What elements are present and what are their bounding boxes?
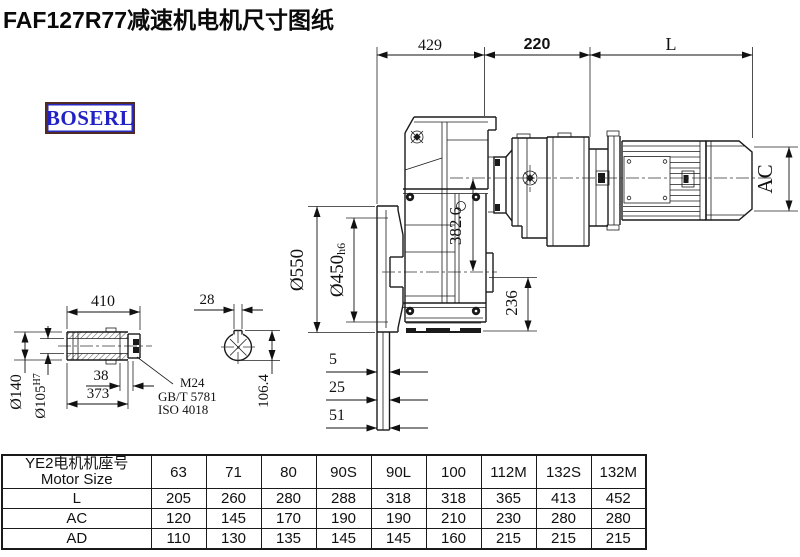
technical-drawing: 429 220 L [0, 0, 800, 454]
motor: AC [607, 131, 798, 230]
cell: 190 [371, 509, 426, 529]
dim-410: 410 [91, 293, 115, 310]
col-100: 100 [426, 455, 481, 489]
dim-106-4: 106.4 [256, 374, 272, 408]
table-row: AD 110 130 135 145 145 160 215 215 215 [2, 529, 646, 550]
bolt-symbol [411, 131, 423, 143]
row-label: AD [2, 529, 151, 550]
table-header-row: YE2电机机座号 Motor Size 63 71 80 90S 90L 100… [2, 455, 646, 489]
page: FAF127R77减速机电机尺寸图纸 BOSERL 429 220 L [0, 0, 800, 557]
cell: 145 [206, 509, 261, 529]
cell: 365 [481, 489, 536, 509]
cell: 260 [206, 489, 261, 509]
top-dimensions: 429 220 L [377, 34, 753, 204]
axes-and-vertical-dims: 382.6 236 [446, 178, 772, 331]
r-gear-unit [488, 133, 609, 246]
row-label: AC [2, 509, 151, 529]
dim-28: 28 [200, 292, 215, 308]
dim-382-6: 382.6 [446, 207, 465, 245]
cell: 215 [591, 529, 646, 550]
cell: 130 [206, 529, 261, 550]
dim-hub-od: Ø140 [8, 374, 25, 410]
cell: 210 [426, 509, 481, 529]
dim-38: 38 [94, 368, 109, 384]
cell: 215 [536, 529, 591, 550]
dim-spigot: Ø450h6 [327, 243, 348, 297]
cell: 280 [261, 489, 316, 509]
cell: 145 [371, 529, 426, 550]
hollow-shaft-view: 410 Ø140 Ø105H7 38 373 [8, 293, 217, 419]
note-m24: M24 [180, 375, 205, 390]
cell: 318 [426, 489, 481, 509]
cell: 135 [261, 529, 316, 550]
dim-236: 236 [502, 290, 521, 316]
cell: 160 [426, 529, 481, 550]
dim-flange-od: Ø550 [287, 249, 308, 291]
col-80: 80 [261, 455, 316, 489]
cell: 280 [536, 509, 591, 529]
dim-bore: Ø105H7 [32, 373, 49, 419]
header-cn: YE2电机机座号 [3, 456, 151, 472]
cell: 288 [316, 489, 371, 509]
col-112m: 112M [481, 455, 536, 489]
cell: 318 [371, 489, 426, 509]
table-row: L 205 260 280 288 318 318 365 413 452 [2, 489, 646, 509]
cell: 280 [591, 509, 646, 529]
dim-5: 5 [329, 351, 337, 368]
dim-429: 429 [418, 37, 442, 54]
cell: 413 [536, 489, 591, 509]
row-label: L [2, 489, 151, 509]
col-71: 71 [206, 455, 261, 489]
col-132s: 132S [536, 455, 591, 489]
col-63: 63 [151, 455, 206, 489]
cell: 230 [481, 509, 536, 529]
motor-size-header-cell: YE2电机机座号 Motor Size [2, 455, 151, 489]
table-row: AC 120 145 170 190 190 210 230 280 280 [2, 509, 646, 529]
dim-373: 373 [87, 386, 110, 402]
cell: 190 [316, 509, 371, 529]
cell: 120 [151, 509, 206, 529]
dim-25: 25 [329, 379, 345, 396]
cell: 145 [316, 529, 371, 550]
motor-size-table: YE2电机机座号 Motor Size 63 71 80 90S 90L 100… [1, 454, 647, 550]
cell: 452 [591, 489, 646, 509]
cell: 110 [151, 529, 206, 550]
dim-AC: AC [753, 164, 777, 193]
cell: 170 [261, 509, 316, 529]
note-iso-standard: ISO 4018 [158, 402, 208, 417]
col-90s: 90S [316, 455, 371, 489]
dim-51: 51 [329, 407, 345, 424]
cell: 215 [481, 529, 536, 550]
dim-220: 220 [524, 36, 551, 53]
col-90l: 90L [371, 455, 426, 489]
col-132m: 132M [591, 455, 646, 489]
cell: 205 [151, 489, 206, 509]
header-en: Motor Size [3, 472, 151, 488]
flange-bolts [406, 193, 480, 315]
dim-L: L [666, 34, 677, 54]
